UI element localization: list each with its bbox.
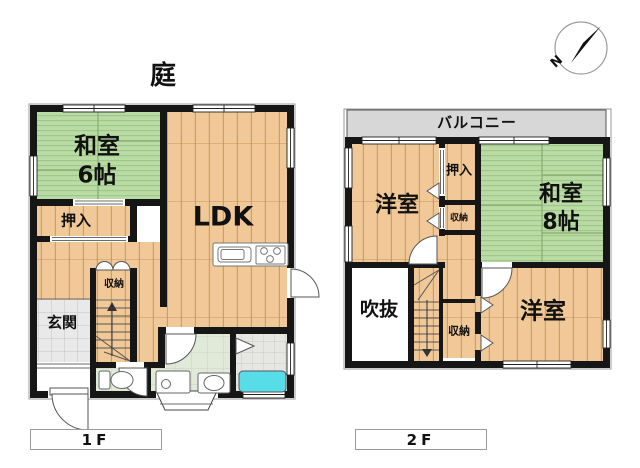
room-label-shuno-1f: 収納 xyxy=(104,280,124,290)
kitchen-counter xyxy=(213,243,288,266)
room-label-genkan: 玄関 xyxy=(47,316,77,331)
room-label-shuno-upper-2f: 収納 xyxy=(450,215,468,224)
washing-machine-icon xyxy=(198,373,230,393)
room-size-washitsu-1f: 6帖 xyxy=(77,165,116,188)
floor-label-box-1f: 1F xyxy=(30,429,162,450)
vanity-sink-icon xyxy=(156,371,190,393)
floor-label-1f: 1F xyxy=(82,431,111,449)
floorplan-2f xyxy=(344,109,611,369)
floor-label-box-2f: 2F xyxy=(355,429,487,450)
room-label-fukinuke: 吹抜 xyxy=(360,301,398,320)
room-label-oshiire-2f: 押入 xyxy=(446,165,472,178)
garden-label: 庭 xyxy=(150,63,176,89)
bathtub-icon xyxy=(239,371,286,392)
bay-window xyxy=(156,391,217,410)
toilet-icon xyxy=(99,371,133,389)
balcony-label: バルコニー xyxy=(437,116,517,131)
room-label-ldk: LDK xyxy=(193,204,254,231)
room-label-oshiire-1f: 押入 xyxy=(61,214,91,229)
room-size-washitsu-2f: 8帖 xyxy=(542,212,579,234)
room-label-shuno-lower-2f: 収納 xyxy=(448,326,470,337)
room-label-washitsu-1f: 和室 xyxy=(74,136,120,159)
floor-label-2f: 2F xyxy=(407,431,436,449)
room-label-yoshitsu-lower-2f: 洋室 xyxy=(520,301,566,324)
sliding-openings-2f xyxy=(439,148,445,229)
floorplan-1f xyxy=(29,104,319,430)
room-label-washitsu-2f: 和室 xyxy=(539,184,583,206)
room-label-yoshitsu-upper-2f: 洋室 xyxy=(375,195,419,217)
floorplan-page: 庭 N 和室 6帖 押入 LDK 収納 玄関 バルコニー 洋室 押入 収納 和室… xyxy=(0,0,640,468)
